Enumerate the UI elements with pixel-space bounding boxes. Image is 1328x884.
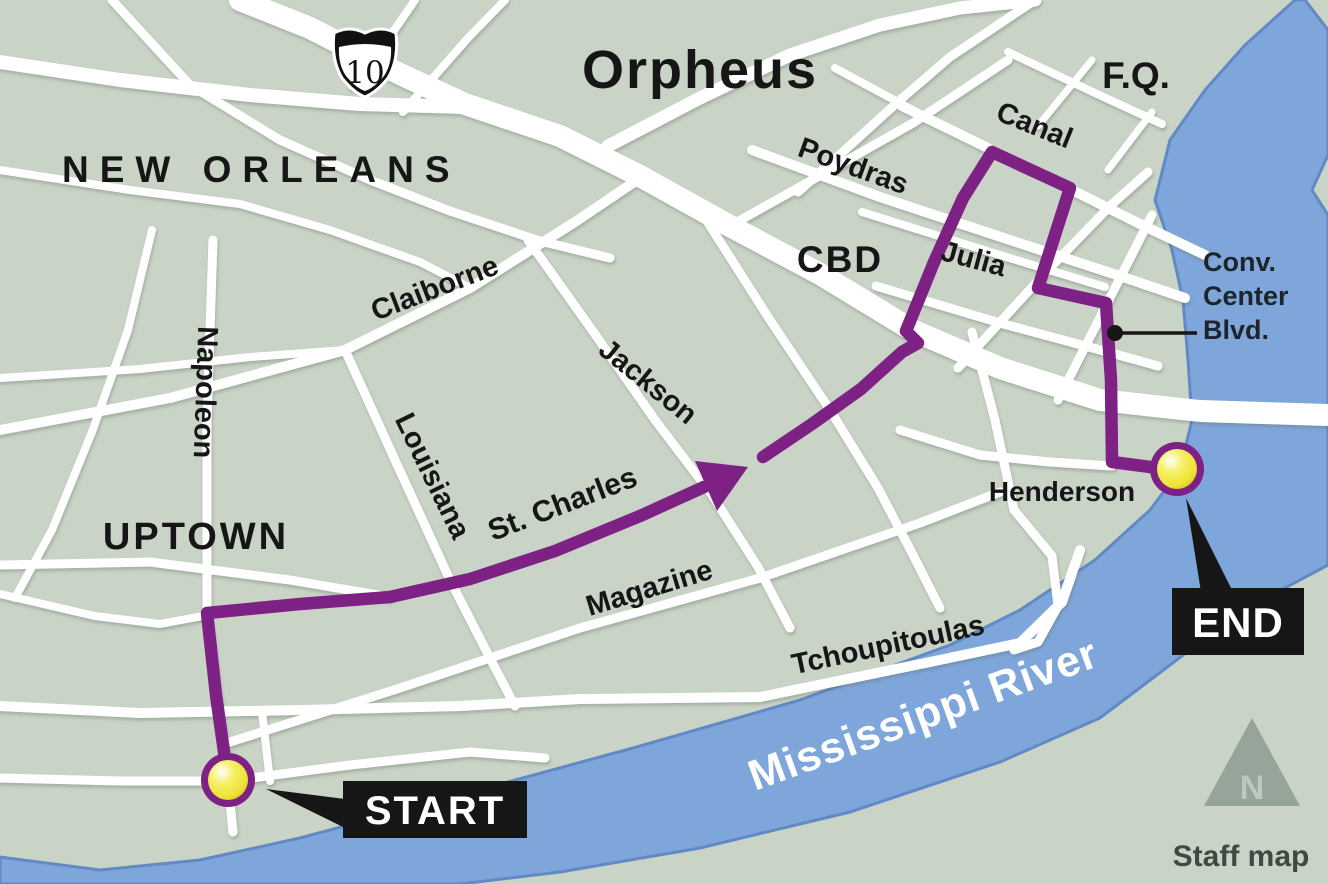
conv-center-blvd-label-line2: Center bbox=[1203, 281, 1289, 311]
neighborhood-label-uptown: UPTOWN bbox=[103, 516, 289, 558]
map-canvas: START END 10 N Orpheus NEW ORLEANS F.Q. … bbox=[0, 0, 1328, 884]
start-label: START bbox=[365, 789, 505, 833]
parade-route-map: START END 10 N Orpheus NEW ORLEANS F.Q. … bbox=[0, 0, 1328, 884]
conv-center-blvd-label-line1: Conv. bbox=[1203, 247, 1276, 277]
start-marker bbox=[201, 753, 255, 807]
conv-center-dot-icon bbox=[1107, 325, 1123, 341]
conv-center-blvd-label-line3: Blvd. bbox=[1203, 315, 1269, 345]
north-letter: N bbox=[1240, 769, 1265, 807]
end-label: END bbox=[1192, 599, 1284, 646]
street-label-napoleon: Napoleon bbox=[187, 326, 224, 459]
neighborhood-label-fq: F.Q. bbox=[1102, 55, 1170, 96]
end-marker bbox=[1150, 442, 1204, 496]
street-label-henderson: Henderson bbox=[989, 476, 1135, 507]
interstate-number: 10 bbox=[345, 55, 384, 91]
neighborhood-label-cbd: CBD bbox=[797, 239, 883, 280]
credit-label: Staff map bbox=[1173, 840, 1310, 873]
page-title: Orpheus bbox=[582, 40, 818, 100]
city-label: NEW ORLEANS bbox=[62, 149, 461, 190]
